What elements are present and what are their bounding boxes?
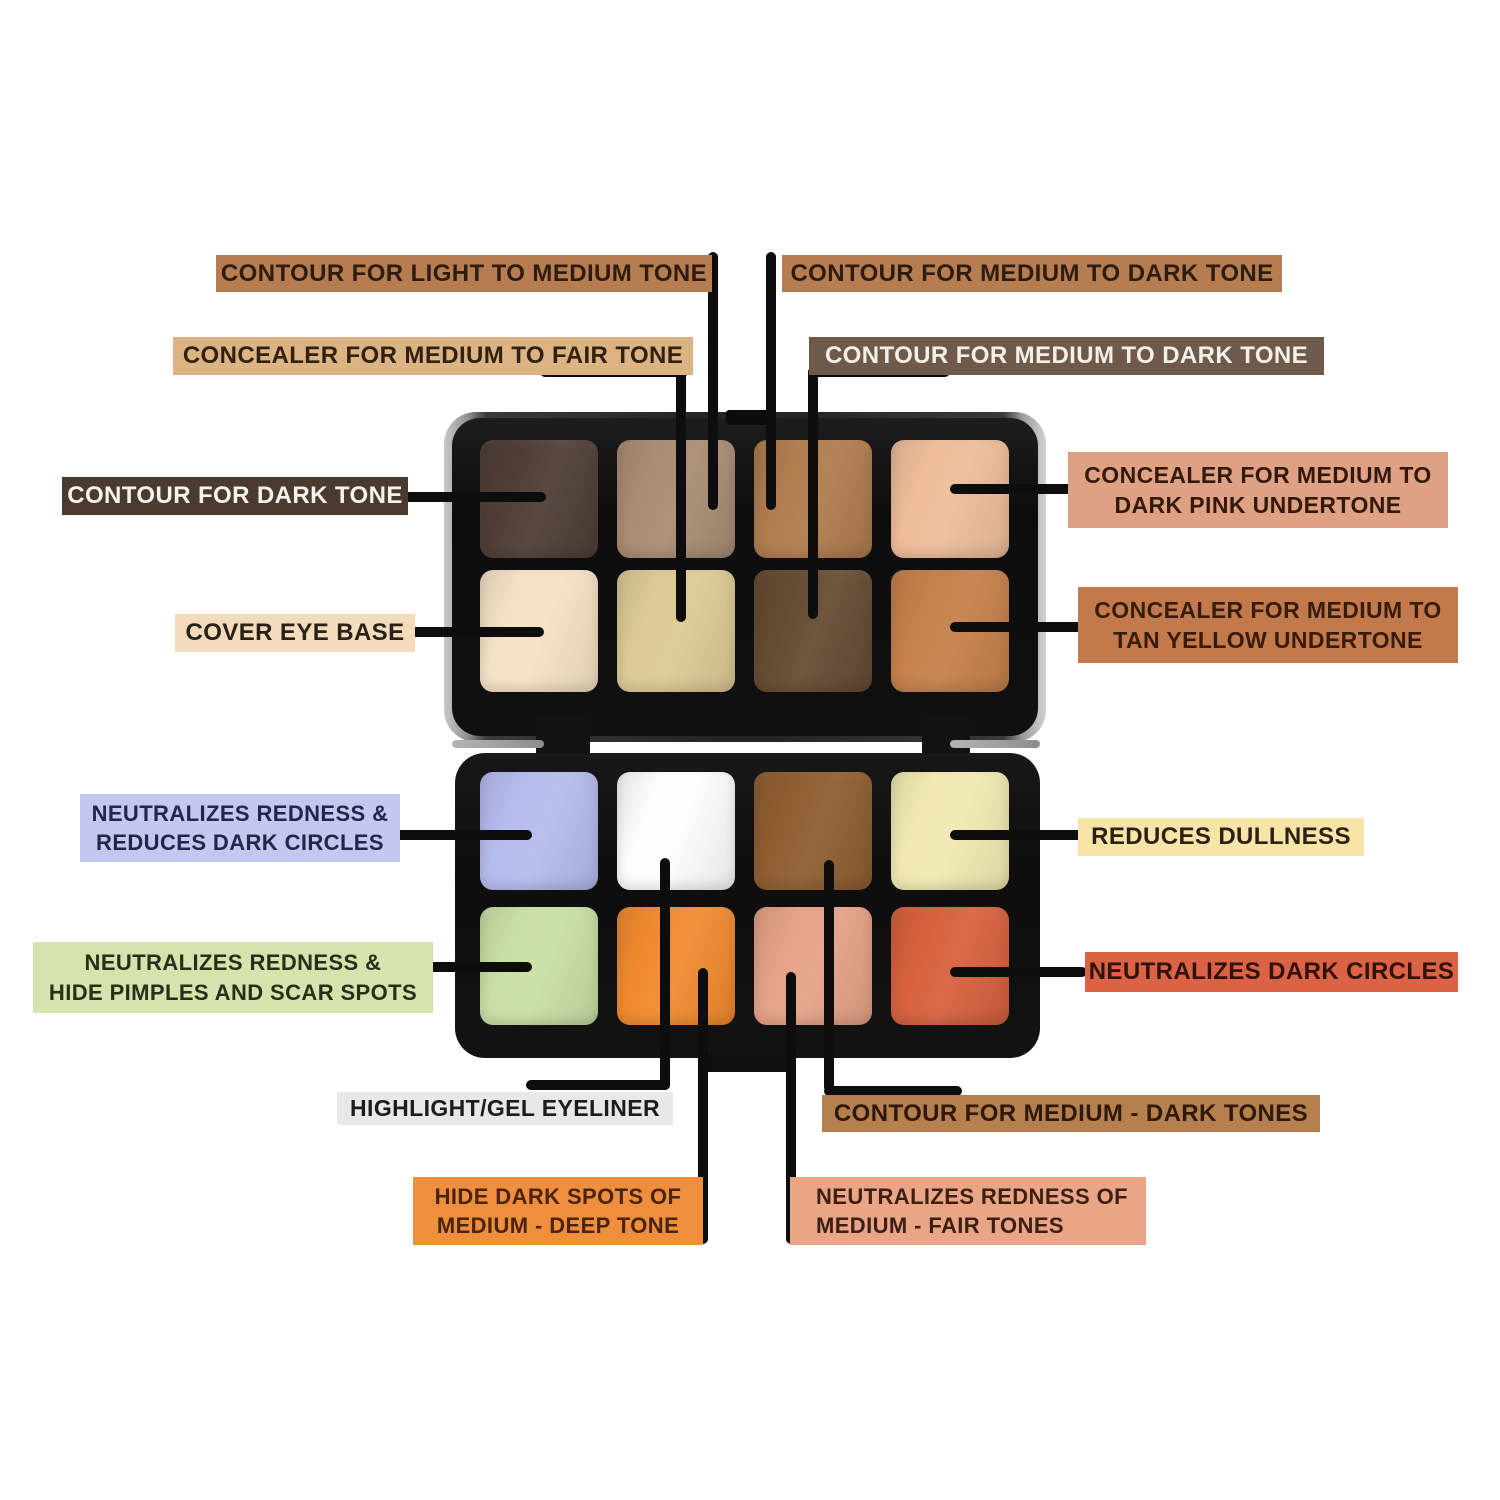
pan-base-medium-dark-contour <box>754 772 872 890</box>
callout-reduces-dullness: REDUCES DULLNESS <box>1078 818 1364 856</box>
callout-concealer-tan-yellow-undertone: CONCEALER FOR MEDIUM TO TAN YELLOW UNDER… <box>1078 587 1458 663</box>
connector-concealer-tan-yellow <box>950 622 1082 632</box>
connector-highlight-v <box>660 858 670 1090</box>
callout-neutralizes-redness-pimples-scars: NEUTRALIZES REDNESS & HIDE PIMPLES AND S… <box>33 942 433 1013</box>
pan-base-highlight-white <box>617 772 735 890</box>
callout-contour-medium-to-dark-tone-2: CONTOUR FOR MEDIUM TO DARK TONE <box>809 337 1324 375</box>
hinge-rim-left <box>452 740 544 748</box>
connector-contour-dark <box>400 492 546 502</box>
connector-highlight-h <box>526 1080 670 1090</box>
connector-cover-eye-base <box>406 627 544 637</box>
connector-concealer-fair-v <box>676 367 686 622</box>
callout-highlight-gel-eyeliner: HIGHLIGHT/GEL EYELINER <box>337 1092 673 1125</box>
callout-concealer-medium-to-fair-tone: CONCEALER FOR MEDIUM TO FAIR TONE <box>173 337 693 375</box>
hinge-rim-right <box>950 740 1040 748</box>
infographic-canvas: CONTOUR FOR LIGHT TO MEDIUM TONE CONTOUR… <box>0 0 1500 1500</box>
connector-dark-circles <box>950 967 1087 977</box>
connector-concealer-pink <box>950 484 1078 494</box>
connector-lavender <box>392 830 532 840</box>
pan-base-red-corrector <box>891 907 1009 1025</box>
callout-neutralizes-redness-dark-circles: NEUTRALIZES REDNESS & REDUCES DARK CIRCL… <box>80 794 400 862</box>
pan-lid-pink-undertone-concealer <box>891 440 1009 558</box>
pan-base-orange-corrector <box>617 907 735 1025</box>
connector-contour-md-tones-v <box>824 860 834 1092</box>
connector-contour-medium-dark-top <box>766 252 776 510</box>
callout-cover-eye-base: COVER EYE BASE <box>175 614 415 652</box>
callout-hide-dark-spots-medium-deep: HIDE DARK SPOTS OF MEDIUM - DEEP TONE <box>413 1177 703 1245</box>
callout-contour-dark-tone: CONTOUR FOR DARK TONE <box>62 477 408 515</box>
callout-concealer-dark-pink-undertone: CONCEALER FOR MEDIUM TO DARK PINK UNDERT… <box>1068 452 1448 528</box>
pan-base-salmon-corrector <box>754 907 872 1025</box>
connector-dullness <box>950 830 1084 840</box>
callout-contour-medium-dark-tones: CONTOUR FOR MEDIUM - DARK TONES <box>822 1095 1320 1132</box>
connector-contour-medium-dark2-v <box>808 367 818 619</box>
callout-contour-light-to-medium-tone: CONTOUR FOR LIGHT TO MEDIUM TONE <box>216 255 712 292</box>
base-latch <box>698 1053 794 1072</box>
callout-contour-medium-to-dark-tone-top: CONTOUR FOR MEDIUM TO DARK TONE <box>782 255 1282 292</box>
callout-neutralizes-redness-medium-fair: NEUTRALIZES REDNESS OF MEDIUM - FAIR TON… <box>790 1177 1146 1245</box>
callout-neutralizes-dark-circles: NEUTRALIZES DARK CIRCLES <box>1085 952 1458 992</box>
